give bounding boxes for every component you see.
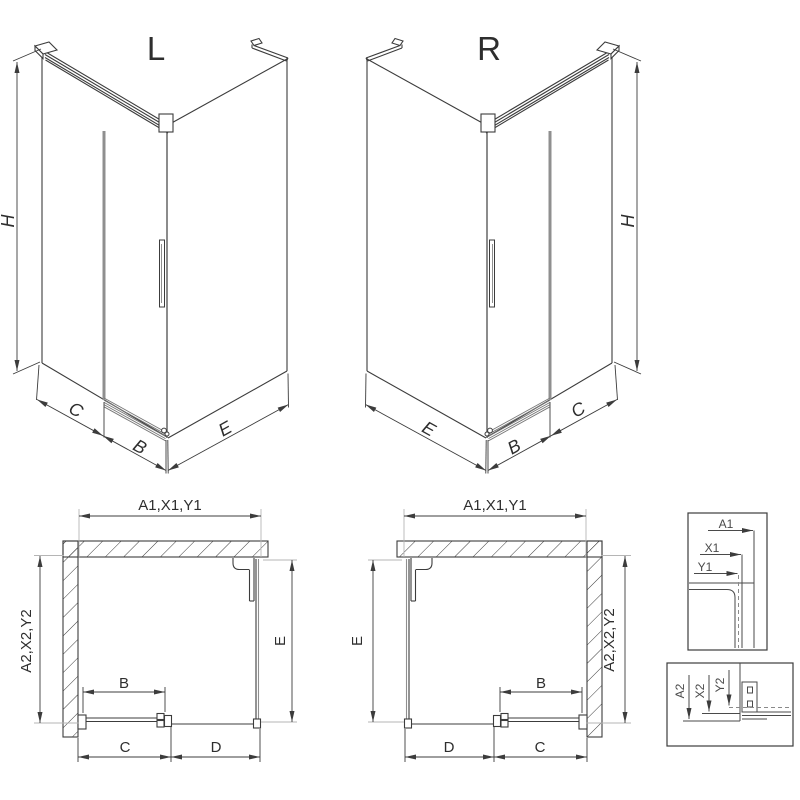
detail-top-x1-label: X1 xyxy=(705,541,720,555)
plan-right-dim-e xyxy=(368,560,404,722)
plan-left-dim-depth-label: A2,X2,Y2 xyxy=(18,609,35,672)
plan-right-dim-depth-label: A2,X2,Y2 xyxy=(601,608,618,671)
plan-view-left: A1,X1,Y1 A2,X2,Y2 B C D E xyxy=(18,497,297,762)
detail-top-a1-label: A1 xyxy=(719,517,734,531)
iso-left-title: L xyxy=(147,30,165,67)
plan-right-dim-c-label: C xyxy=(535,739,546,756)
detail-view-bottom-rail: A2 X2 Y2 xyxy=(667,663,793,746)
plan-left-dim-cd xyxy=(78,727,260,762)
plan-left-dim-b-label: B xyxy=(119,675,129,692)
detail-top-y1-label: Y1 xyxy=(698,560,713,574)
iso-right-dim-c: C xyxy=(568,397,590,421)
detail-bottom-y2-label: Y2 xyxy=(713,677,727,692)
iso-right-dim-h: H xyxy=(618,214,638,228)
shower-enclosure-drawing: L H C B E R H C B E xyxy=(0,0,800,800)
wall-hatch-right-plan xyxy=(397,541,602,737)
plan-left-dim-width-label: A1,X1,Y1 xyxy=(138,497,201,514)
plan-right-dim-d-label: D xyxy=(444,739,455,756)
detail-bottom-a2-label: A2 xyxy=(673,683,687,698)
iso-left-dim-c: C xyxy=(65,398,87,422)
plan-left-dim-e-label: E xyxy=(272,636,289,646)
iso-left-dim-h: H xyxy=(0,214,18,228)
iso-view-right: R H C B E xyxy=(366,30,642,474)
iso-left-dim-b: B xyxy=(130,435,150,458)
iso-right-title: R xyxy=(477,30,501,67)
iso-right-dim-e: E xyxy=(419,417,440,441)
iso-right-dim-b: B xyxy=(504,435,524,458)
plan-right-dim-dc xyxy=(405,727,587,762)
plan-view-right: A1,X1,Y1 A2,X2,Y2 B D C E xyxy=(349,497,631,762)
plan-right-dim-e-label: E xyxy=(349,636,366,646)
detail-view-wall-profile: A1 X1 Y1 xyxy=(688,513,767,650)
iso-left-dim-e: E xyxy=(215,417,236,441)
plan-left-dim-d-label: D xyxy=(211,739,222,756)
wall-hatch-left-plan xyxy=(63,541,268,737)
iso-view-left: L H C B E xyxy=(0,30,289,474)
plan-right-dim-b-label: B xyxy=(536,675,546,692)
plan-right-dim-width-label: A1,X1,Y1 xyxy=(463,497,526,514)
detail-bottom-x2-label: X2 xyxy=(693,683,707,698)
technical-drawing-page: L H C B E R H C B E xyxy=(0,0,800,800)
plan-left-dim-c-label: C xyxy=(120,739,131,756)
